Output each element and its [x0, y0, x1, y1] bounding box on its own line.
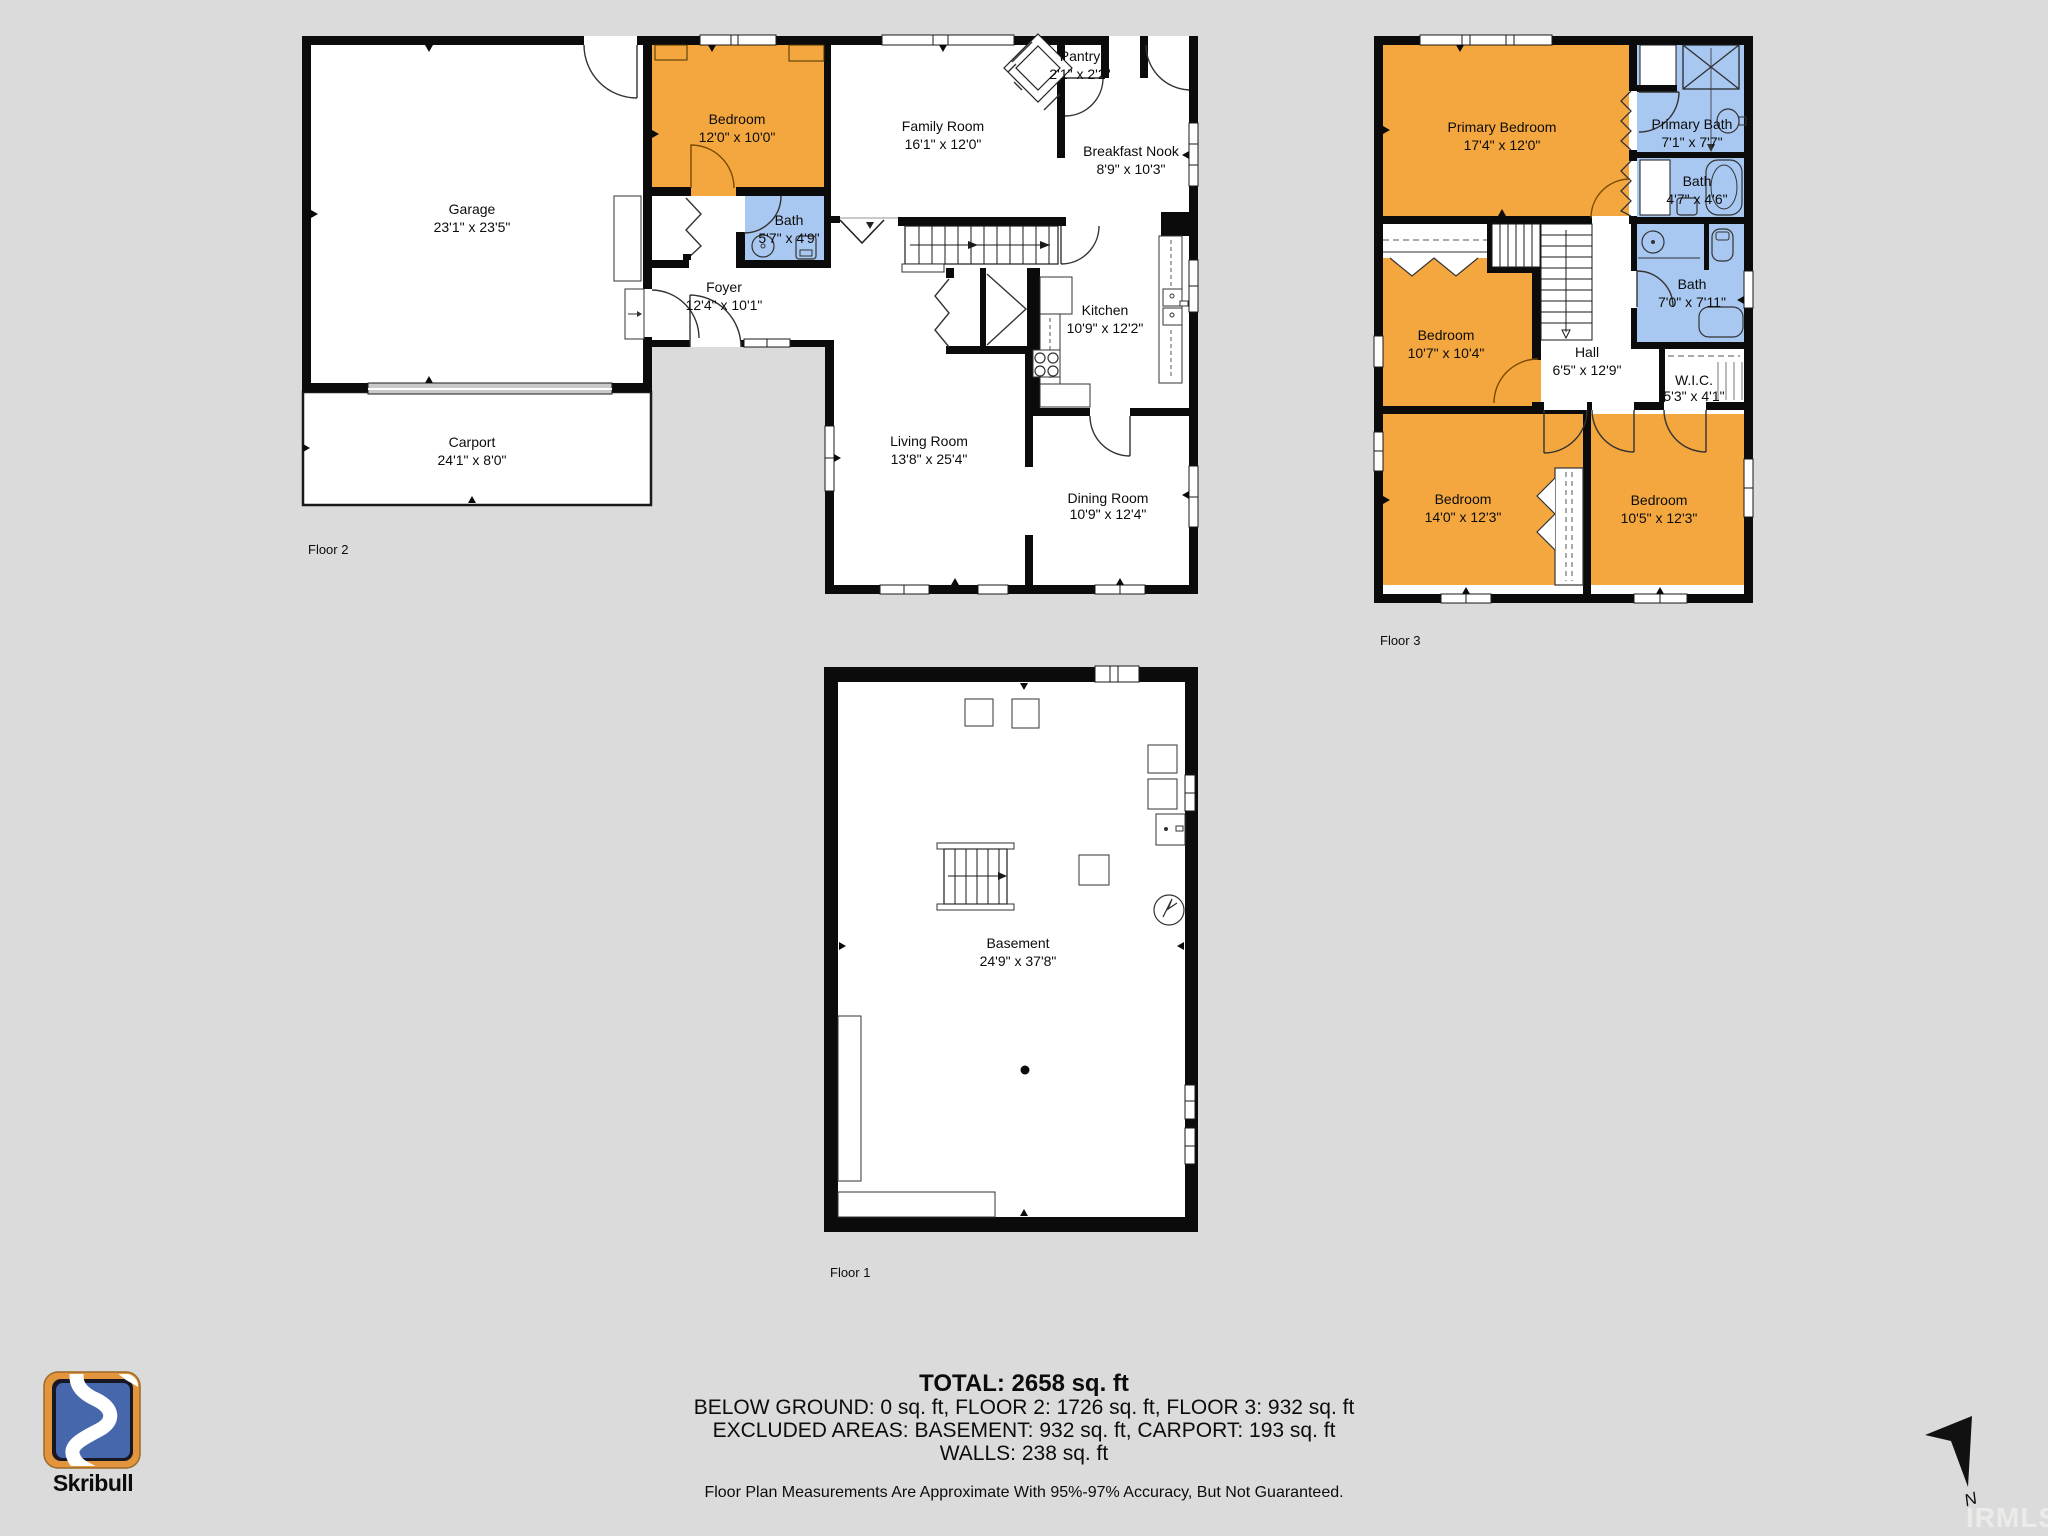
svg-text:TOTAL: 2658 sq. ft: TOTAL: 2658 sq. ft: [919, 1370, 1129, 1397]
svg-text:17'4" x 12'0": 17'4" x 12'0": [1464, 137, 1541, 153]
svg-text:W.I.C.: W.I.C.: [1675, 372, 1713, 388]
svg-text:2'1" x 2'2": 2'1" x 2'2": [1049, 66, 1110, 82]
svg-text:23'1" x 23'5": 23'1" x 23'5": [434, 219, 511, 235]
svg-text:5'3" x 4'1": 5'3" x 4'1": [1663, 388, 1724, 404]
svg-text:Bath: Bath: [1683, 173, 1712, 189]
svg-text:Basement: Basement: [986, 935, 1049, 951]
svg-text:Primary Bedroom: Primary Bedroom: [1448, 119, 1557, 135]
svg-text:Floor 3: Floor 3: [1380, 633, 1420, 648]
svg-text:IRMLS: IRMLS: [1966, 1502, 2048, 1533]
svg-text:Garage: Garage: [449, 201, 496, 217]
svg-text:10'5" x 12'3": 10'5" x 12'3": [1621, 510, 1698, 526]
svg-text:16'1" x 12'0": 16'1" x 12'0": [905, 136, 982, 152]
svg-text:Bath: Bath: [775, 212, 804, 228]
svg-text:10'7" x 10'4": 10'7" x 10'4": [1408, 345, 1485, 361]
svg-text:24'9" x 37'8": 24'9" x 37'8": [980, 953, 1057, 969]
svg-text:Kitchen: Kitchen: [1082, 302, 1129, 318]
svg-text:Dining Room: Dining Room: [1068, 490, 1149, 506]
svg-text:Primary Bath: Primary Bath: [1652, 116, 1733, 132]
svg-text:Family Room: Family Room: [902, 118, 984, 134]
svg-text:12'4" x 10'1": 12'4" x 10'1": [686, 297, 763, 313]
svg-text:Pantry: Pantry: [1060, 48, 1100, 64]
svg-text:Floor 1: Floor 1: [830, 1265, 870, 1280]
svg-text:7'0" x 7'11": 7'0" x 7'11": [1658, 294, 1726, 310]
svg-text:Bedroom: Bedroom: [1435, 491, 1492, 507]
svg-text:13'8" x 25'4": 13'8" x 25'4": [891, 451, 968, 467]
svg-text:12'0" x 10'0": 12'0" x 10'0": [699, 129, 776, 145]
svg-text:Living Room: Living Room: [890, 433, 968, 449]
svg-text:Foyer: Foyer: [706, 279, 742, 295]
svg-text:10'9" x 12'4": 10'9" x 12'4": [1070, 506, 1147, 522]
svg-text:Carport: Carport: [449, 434, 496, 450]
svg-text:Skribull: Skribull: [53, 1470, 133, 1496]
svg-text:10'9" x 12'2": 10'9" x 12'2": [1067, 320, 1144, 336]
svg-text:WALLS: 238 sq. ft: WALLS: 238 sq. ft: [940, 1442, 1109, 1465]
svg-text:7'1" x 7'7": 7'1" x 7'7": [1661, 134, 1722, 150]
svg-text:BELOW GROUND: 0 sq. ft, FLOOR: BELOW GROUND: 0 sq. ft, FLOOR 2: 1726 sq…: [694, 1396, 1355, 1419]
svg-text:Bedroom: Bedroom: [709, 111, 766, 127]
svg-text:Floor 2: Floor 2: [308, 542, 348, 557]
svg-text:Hall: Hall: [1575, 344, 1599, 360]
svg-text:Floor Plan Measurements Are Ap: Floor Plan Measurements Are Approximate …: [704, 1484, 1343, 1501]
svg-text:14'0" x 12'3": 14'0" x 12'3": [1425, 509, 1502, 525]
svg-text:EXCLUDED AREAS: BASEMENT: 932: EXCLUDED AREAS: BASEMENT: 932 sq. ft, CA…: [713, 1419, 1336, 1442]
svg-text:Bath: Bath: [1678, 276, 1707, 292]
svg-text:Bedroom: Bedroom: [1631, 492, 1688, 508]
svg-text:5'7" x 4'9": 5'7" x 4'9": [758, 230, 819, 246]
svg-text:8'9" x 10'3": 8'9" x 10'3": [1097, 161, 1166, 177]
svg-text:24'1" x 8'0": 24'1" x 8'0": [438, 452, 507, 468]
svg-text:4'7" x 4'6": 4'7" x 4'6": [1666, 191, 1727, 207]
svg-text:Breakfast Nook: Breakfast Nook: [1083, 143, 1180, 159]
svg-text:6'5" x 12'9": 6'5" x 12'9": [1553, 362, 1622, 378]
svg-text:Bedroom: Bedroom: [1418, 327, 1475, 343]
